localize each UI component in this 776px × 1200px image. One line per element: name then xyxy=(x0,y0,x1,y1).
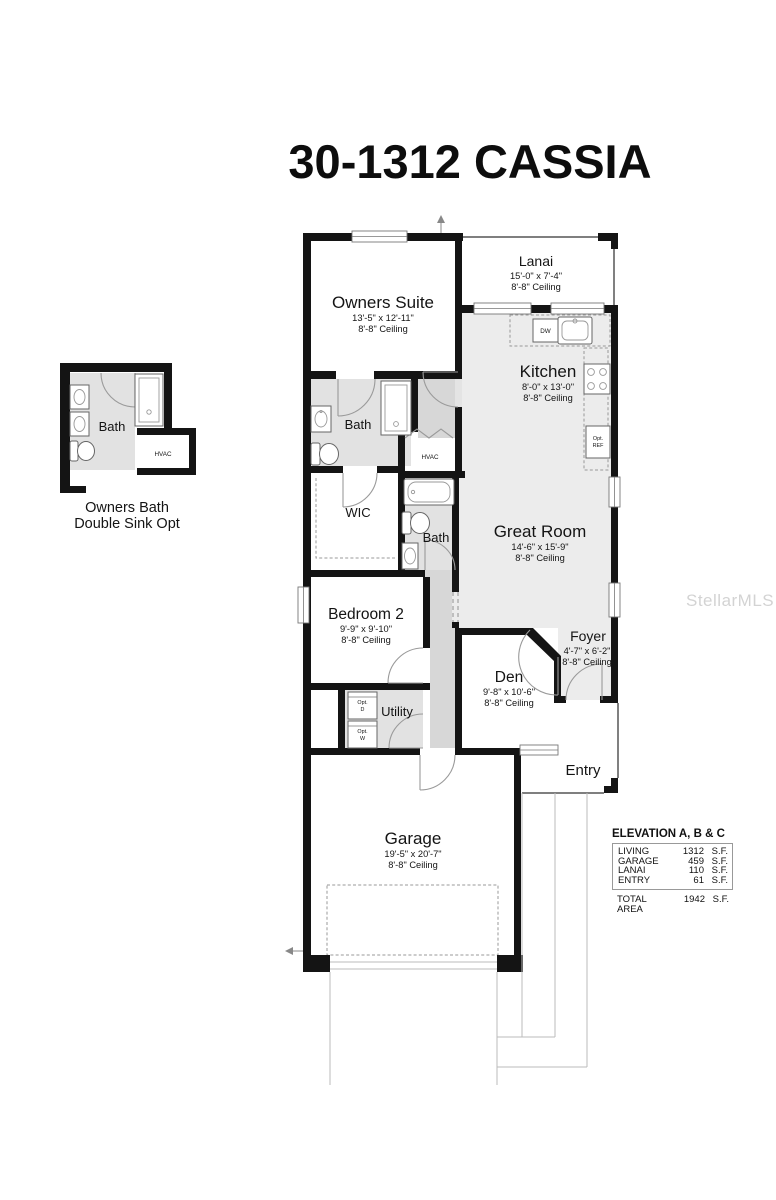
entry-corner-block xyxy=(604,778,618,793)
hall-top-floor xyxy=(418,379,455,438)
opt-ref-label-2: REF xyxy=(593,443,604,449)
opt-dryer-label-1: Opt. xyxy=(357,700,367,706)
foyer-label: Foyer xyxy=(570,628,606,644)
wall-row-bottom-a xyxy=(303,570,425,577)
row-label: ENTRY xyxy=(618,876,672,886)
row-unit: S.F. xyxy=(704,876,728,886)
inset-vanity-icon-2 xyxy=(70,412,89,436)
refrigerator-icon xyxy=(586,426,610,458)
total-label: TOTAL AREA xyxy=(617,895,673,914)
inset-shower-icon xyxy=(135,374,163,426)
stove-icon xyxy=(584,364,610,394)
inset-vanity-icon-1 xyxy=(70,385,89,409)
garage-dims: 19'-5" x 20'-7" xyxy=(384,849,441,859)
owners-suite-label: Owners Suite xyxy=(332,293,434,312)
inset-wall-top xyxy=(60,363,172,372)
inset-wall-left xyxy=(60,363,70,493)
wall-hall-kitchen xyxy=(455,407,462,478)
owners-toilet-icon xyxy=(311,443,339,465)
kitchen-label: Kitchen xyxy=(520,362,577,381)
den-ceiling: 8'-8" Ceiling xyxy=(484,698,534,708)
utility-label: Utility xyxy=(381,704,413,719)
wall-garage-bl xyxy=(303,955,330,972)
inset-wall-hvac-top xyxy=(137,428,196,435)
opt-washer-label-1: Opt. xyxy=(357,729,367,735)
inset-wall-hvac-bottom xyxy=(137,468,196,475)
door-garage xyxy=(420,755,455,790)
hall-opening-floor xyxy=(455,379,462,407)
wall-foyer-bottom-a xyxy=(554,696,566,703)
garage-door-recess xyxy=(327,885,498,955)
bath2-door-floor xyxy=(425,570,455,577)
wall-greatroom-left-b xyxy=(452,622,459,628)
wall-utility-left xyxy=(338,690,345,748)
wall-den-top xyxy=(455,628,533,635)
row-value: 61 xyxy=(672,876,704,886)
wall-den-left xyxy=(455,635,462,755)
dishwasher-label: DW xyxy=(540,328,551,335)
inset-bath-label: Bath xyxy=(99,419,126,434)
lanai-corner-b xyxy=(611,233,618,249)
entry-label: Entry xyxy=(565,762,601,779)
lanai-label: Lanai xyxy=(519,253,553,269)
inset-caption-line2: Double Sink Opt xyxy=(74,516,180,532)
wic-label: WIC xyxy=(345,505,370,520)
great-room-dims: 14'-6" x 15'-9" xyxy=(511,542,568,552)
garage-ceiling: 8'-8" Ceiling xyxy=(388,860,438,870)
owners-shower-icon xyxy=(381,381,411,435)
total-value: 1942 xyxy=(673,895,705,914)
inset-wall-bottom-stub xyxy=(70,486,86,493)
opt-ref-label-1: Opt. xyxy=(593,436,603,442)
lanai-ceiling: 8'-8" Ceiling xyxy=(511,282,561,292)
inset-wall-hvac-right xyxy=(189,428,196,475)
watermark: StellarMLS xyxy=(686,591,774,611)
owners-vanity-icon xyxy=(311,406,331,432)
great-room-label: Great Room xyxy=(494,522,587,541)
wall-hvac-bottom xyxy=(398,471,465,478)
bedroom2-dims: 9'-9" x 9'-10" xyxy=(340,624,392,634)
inset-caption-line1: Owners Bath xyxy=(85,500,169,516)
wall-garage-right xyxy=(514,755,521,955)
inset-wall-shower-right xyxy=(164,372,172,428)
garage-door-lines xyxy=(330,962,497,969)
wall-bath-wic-a xyxy=(303,466,343,473)
bath2-label: Bath xyxy=(423,530,450,545)
inset-toilet-icon xyxy=(70,441,95,461)
floor-plan-drawing: Owners Suite 13'-5" x 12'-11" 8'-8" Ceil… xyxy=(0,0,776,1200)
site-lines xyxy=(330,703,618,1085)
wall-bed2-right xyxy=(423,577,430,648)
wall-bath-hall xyxy=(411,379,418,432)
total-unit: S.F. xyxy=(705,895,729,914)
table-row: ENTRY 61 S.F. xyxy=(618,876,728,886)
wall-garage-br xyxy=(497,955,523,972)
owners-suite-ceiling: 8'-8" Ceiling xyxy=(358,324,408,334)
owners-suite-dims: 13'-5" x 12'-11" xyxy=(352,313,414,323)
den-label: Den xyxy=(495,669,523,686)
bedroom2-label: Bedroom 2 xyxy=(328,606,404,623)
wall-os-right xyxy=(455,241,462,379)
bathtub-icon xyxy=(404,479,454,505)
den-dims: 9'-8" x 10'-6" xyxy=(483,687,535,697)
wall-os-bottom-a xyxy=(303,371,336,379)
garage-label: Garage xyxy=(385,829,442,848)
area-table-box: LIVING 1312 S.F. GARAGE 459 S.F. LANAI 1… xyxy=(612,843,733,890)
lanai-dims: 15'-0" x 7'-4" xyxy=(510,271,562,281)
wall-bed2-bottom xyxy=(303,683,430,690)
bedroom2-ceiling: 8'-8" Ceiling xyxy=(341,635,391,645)
door-wic xyxy=(343,473,377,507)
wall-bath-wic-b xyxy=(377,466,400,473)
area-table-title: ELEVATION A, B & C xyxy=(612,828,733,840)
hvac-label: HVAC xyxy=(421,454,438,461)
foyer-ceiling: 8'-8" Ceiling xyxy=(562,657,612,667)
owners-bath-label: Bath xyxy=(345,417,372,432)
wall-row-bottom-b xyxy=(455,570,459,577)
page: { "title": "30-1312 CASSIA", "watermark"… xyxy=(0,0,776,1200)
area-table: ELEVATION A, B & C LIVING 1312 S.F. GARA… xyxy=(612,828,733,914)
kitchen-ceiling: 8'-8" Ceiling xyxy=(523,393,573,403)
wall-garage-top-a xyxy=(303,748,420,755)
bath2-vanity-icon xyxy=(402,543,418,569)
great-room-ceiling: 8'-8" Ceiling xyxy=(515,553,565,563)
inset-hvac-label: HVAC xyxy=(154,451,171,458)
kitchen-dims: 8'-0" x 13'-0" xyxy=(522,382,574,392)
area-table-total: TOTAL AREA 1942 S.F. xyxy=(612,895,733,914)
door-bedroom2 xyxy=(388,648,423,683)
opt-dryer-label-2: D xyxy=(361,707,365,713)
wall-foyer-bottom-b xyxy=(600,696,618,703)
foyer-dims: 4'-7" x 6'-2" xyxy=(564,646,611,656)
